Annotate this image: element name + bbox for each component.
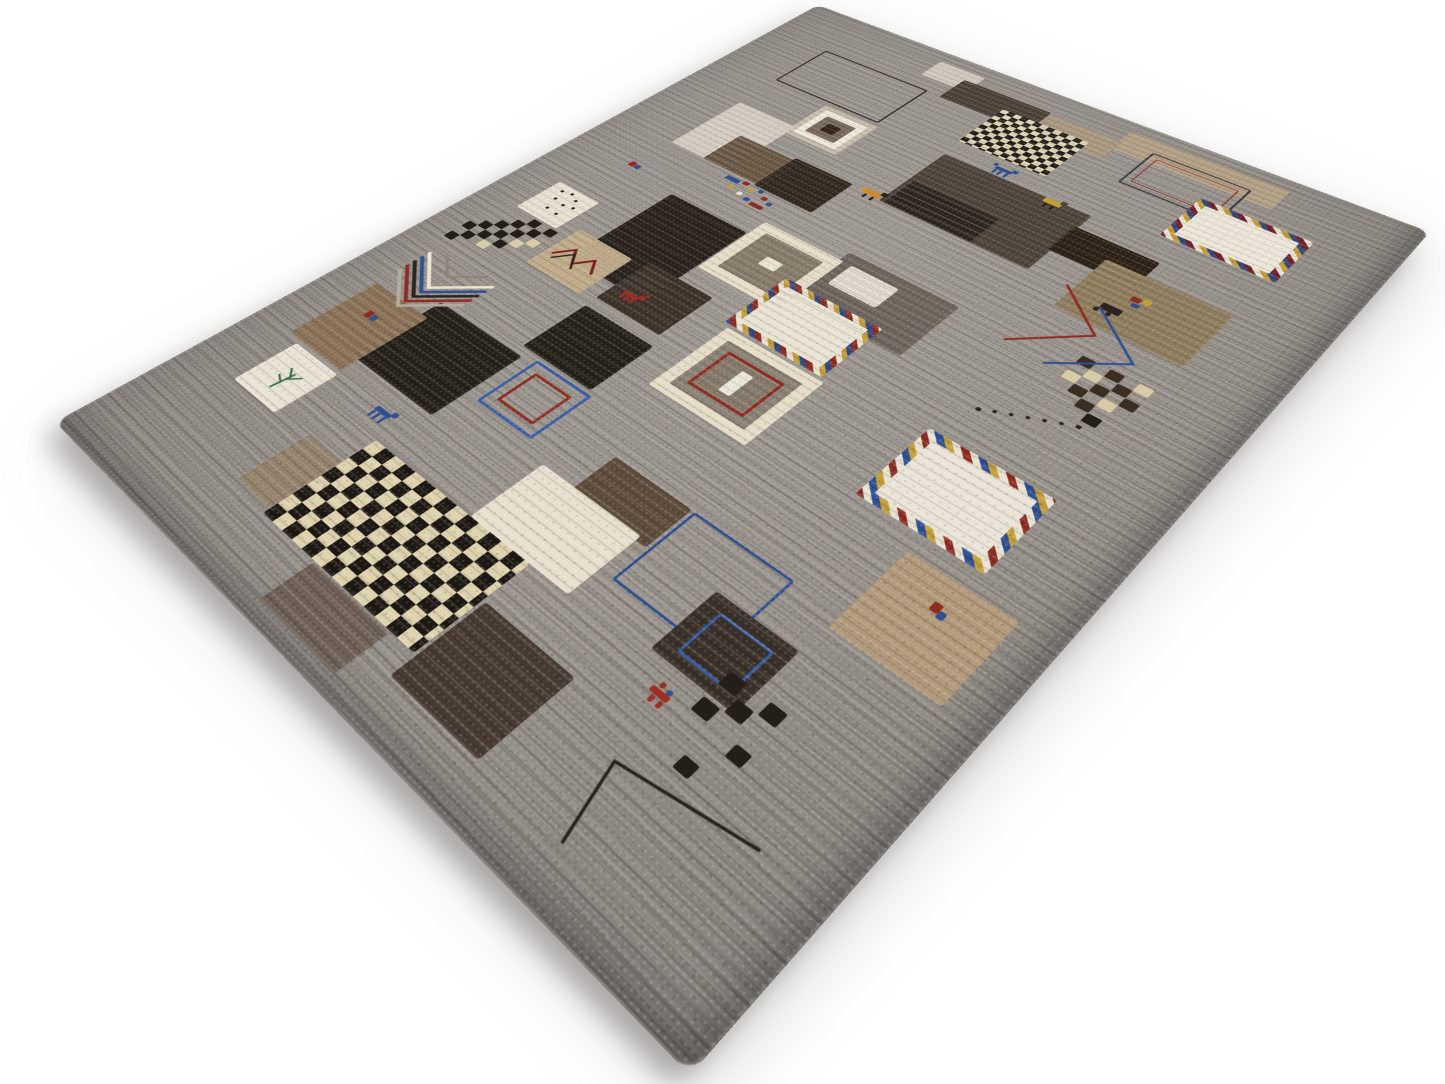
blue-horse-bottom <box>360 399 404 430</box>
product-photo-canvas <box>0 0 1445 1084</box>
small-checkerboard <box>958 109 1089 176</box>
ornate-rect-topright <box>1160 198 1314 283</box>
red-mark-mid-left <box>624 159 647 171</box>
rug-field <box>55 5 1430 1075</box>
white-flower-rect <box>855 428 1057 574</box>
red-motif-bottom <box>637 675 686 717</box>
tan-patch-bottomright <box>828 551 1019 707</box>
outline-rect-topleft <box>775 50 928 123</box>
rug-photo <box>55 5 1430 1075</box>
rug-scene <box>0 0 1445 1084</box>
